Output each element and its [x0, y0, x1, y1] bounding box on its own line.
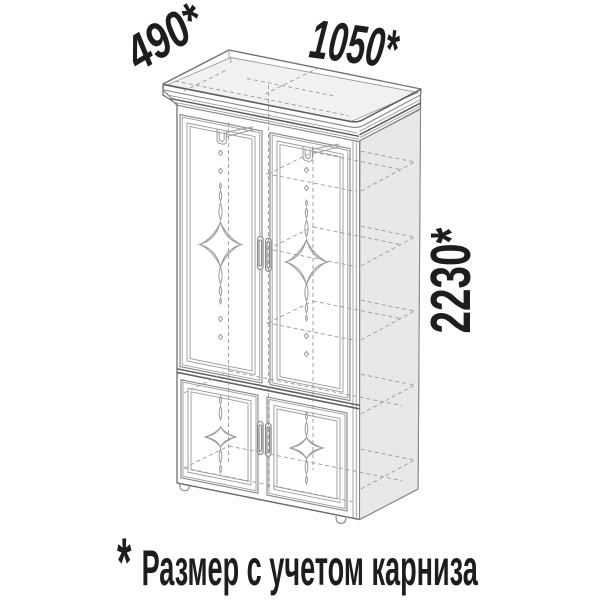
svg-text:2230*: 2230* [419, 227, 482, 333]
svg-text:1050*: 1050* [306, 8, 403, 81]
